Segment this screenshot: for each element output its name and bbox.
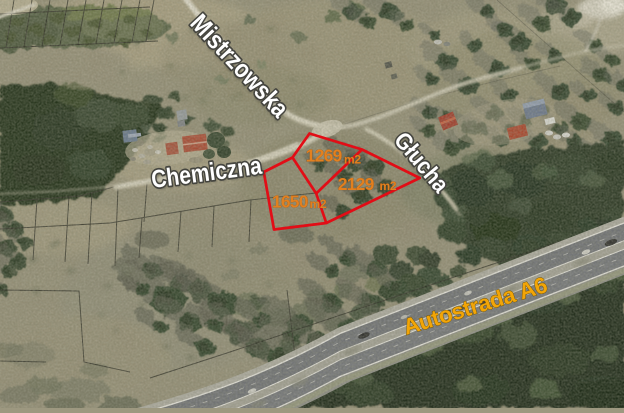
svg-text:1650: 1650: [272, 192, 308, 212]
svg-text:2129: 2129: [338, 174, 374, 194]
svg-text:m2: m2: [380, 179, 397, 193]
svg-text:m2: m2: [310, 197, 327, 211]
svg-text:1269: 1269: [306, 146, 342, 166]
svg-text:m2: m2: [344, 153, 361, 167]
